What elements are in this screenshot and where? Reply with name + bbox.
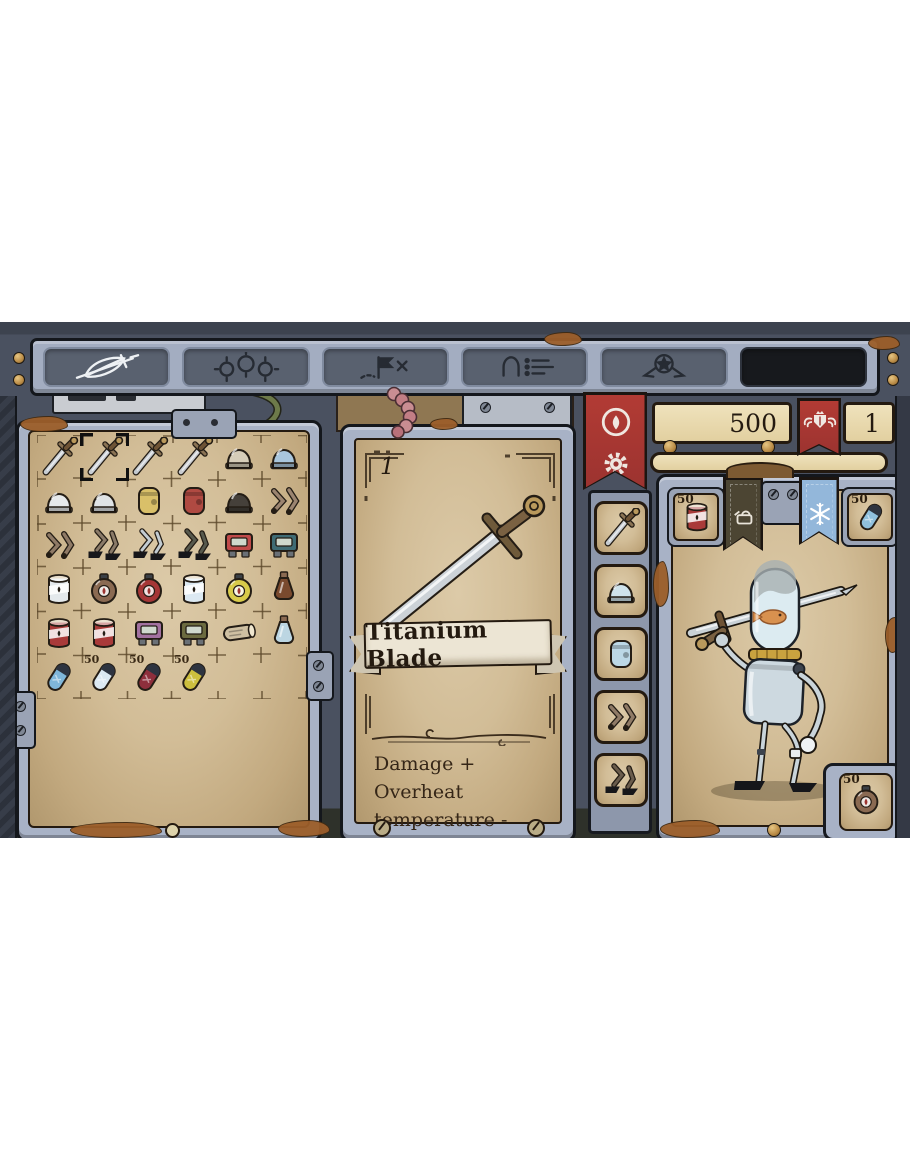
bracket-hole [183,419,190,426]
item-detail-panel: 1 Titanium Blade [340,424,576,838]
screw [768,489,779,500]
banner-fill [726,480,761,549]
banner-fill [586,395,645,488]
rust-patch [868,336,900,350]
equipment-slot-head[interactable] [594,564,648,618]
module-icon [174,613,214,653]
legs-icon [129,525,169,565]
inventory-item-ice-grenade[interactable] [172,567,217,611]
oil-quickslot[interactable]: 50 [667,487,725,547]
can-icon [39,569,79,609]
sword-icon [601,508,641,548]
bomb-icon [129,569,169,609]
rust-patch [278,820,330,837]
module-icon [264,525,304,565]
star-medal-icon [610,352,718,382]
inventory-item-red-capsule[interactable]: 50 [127,655,172,699]
inventory-item-white-capsule[interactable]: 50 [82,655,127,699]
fame-pennant [797,398,841,456]
bomb-item [847,781,885,819]
rust-patch [430,418,458,430]
rust-patch [70,822,162,838]
oil-amount: 500 [729,409,777,438]
item-name: Titanium Blade [365,615,550,673]
bomb-icon [84,569,124,609]
helmet-icon [219,437,259,477]
inventory-item-emp-bomb[interactable] [217,567,262,611]
equipment-slot-body[interactable] [594,627,648,681]
module-icon [219,525,259,565]
inventory-item-yellow-capsule[interactable]: 50 [172,655,217,699]
inventory-item-gold-torso[interactable] [127,479,172,523]
rust-patch [653,561,669,607]
helmet-icon [264,437,304,477]
arms-icon [264,481,304,521]
rivet [13,352,25,364]
rust-patch [660,820,720,838]
item-count: 50 [174,653,189,666]
oil-drop-icon [599,405,633,439]
panel-rivet [373,819,391,837]
screw [544,402,555,413]
inventory-item-fire-bomb[interactable] [127,567,172,611]
equipment-column [588,490,652,834]
bottle-icon [264,613,304,653]
panel-rivet [767,823,781,837]
torso-icon [129,481,169,521]
pill-icon [39,657,79,697]
tab-gear[interactable] [182,347,309,387]
detail-card: 1 Titanium Blade [354,438,562,824]
inventory-item-purple-module[interactable] [127,611,172,655]
fame-level-field: 1 [843,402,895,444]
screw [480,402,491,413]
inventory-item-dagger[interactable] [172,435,217,479]
bottle-icon [264,569,304,609]
inventory-item-steel-helmet[interactable] [37,479,82,523]
sword-icon [174,437,214,477]
can-icon [39,613,79,653]
equipment-slot-arms[interactable] [594,690,648,744]
inventory-item-red-torso[interactable] [172,479,217,523]
ribbon-band: Titanium Blade [364,619,553,669]
rust-patch [544,332,582,346]
equipment-slot-legs[interactable] [594,753,648,807]
inventory-item-titanium-blade[interactable] [82,435,127,479]
fame-level: 1 [864,409,880,438]
can-icon [174,569,214,609]
tab-map[interactable] [322,347,449,387]
right-hinge [306,651,334,701]
inventory-grid: 505050 [37,435,307,699]
sword-icon [129,437,169,477]
inventory-item-robot-arms[interactable] [262,479,307,523]
screw [313,660,324,671]
stat-line: Damage + [374,750,560,778]
bomb-quickslot[interactable]: 50 [839,773,893,831]
game-viewport: 505050 1 [0,322,910,838]
bomb-quickslot-backing: 50 [823,763,903,838]
oil-tag-banner [723,477,763,551]
helmet-icon [84,481,124,521]
bomb-icon [219,569,259,609]
rivet [13,374,25,386]
panel-rivet [165,823,180,838]
divider-flourish [368,728,550,746]
inventory-item-oil-can-large[interactable] [82,611,127,655]
inventory-item-fur-hat[interactable] [217,479,262,523]
worm-hose [380,384,442,440]
tab-inventory[interactable] [43,347,170,387]
rivet [887,374,899,386]
inventory-item-teal-module[interactable] [262,523,307,567]
character-panel: 50 [656,474,904,838]
winged-shield-icon [802,411,838,435]
inventory-item-sack-bomb[interactable] [82,567,127,611]
bomb-quickslot-count: 50 [843,772,860,786]
legs-icon [174,525,214,565]
inventory-item-armored-legs[interactable] [127,523,172,567]
inventory-item-oil-can-small[interactable] [37,611,82,655]
helmet-icon [39,481,79,521]
panel-bracket [171,409,237,439]
inventory-item-coolant-capsule[interactable] [37,655,82,699]
oil-quickslot-count: 50 [677,492,694,506]
scroll-icon [219,613,259,653]
inventory-item-canister[interactable] [37,567,82,611]
helmet-icon [601,571,641,611]
inventory-item-crystal-flask[interactable] [262,611,307,655]
oil-amount-field: 500 [652,402,792,444]
coolant-quickslot-inner: 50 [847,493,893,541]
inventory-item-robot-arms[interactable] [37,523,82,567]
arms-icon [601,697,641,737]
torso-icon [174,481,214,521]
legs-icon [84,525,124,565]
inventory-item-sword[interactable] [127,435,172,479]
tab-bar [30,338,880,396]
oil-quickslot-inner: 50 [673,493,719,541]
can-icon [84,613,124,653]
helmet-icon [219,481,259,521]
item-count: 50 [129,653,144,666]
right-wall-strip [895,396,910,838]
inventory-item-red-module[interactable] [217,523,262,567]
map-flag-icon [331,352,439,382]
page: { "tabs": { "items": [ {"id":"inventory"… [0,0,910,1155]
inventory-panel: 505050 [16,420,322,838]
sword-icon [39,437,79,477]
left-wall-strip [0,396,17,838]
gears-icon [192,352,300,382]
screw [787,489,798,500]
oil-banner [583,392,647,490]
torso-icon [601,634,641,674]
inventory-item-robot-legs[interactable] [82,523,127,567]
coolant-quickslot[interactable]: 50 [841,487,899,547]
tab-blank[interactable] [740,347,867,387]
rivet [887,352,899,364]
module-icon [129,613,169,653]
oil-can-icon [731,506,757,528]
arms-icon [39,525,79,565]
panel-rivet [527,819,545,837]
rust-patch [20,416,68,432]
tab-achievements[interactable] [600,347,727,387]
dirt-mound [726,462,794,478]
tab-character[interactable] [461,347,588,387]
inventory-item-dome-helmet[interactable] [262,435,307,479]
item-count: 50 [84,653,99,666]
item-name-ribbon: Titanium Blade [349,618,567,676]
inventory-item-scroll[interactable] [217,611,262,655]
banner-fill [802,480,837,543]
selection-brackets [80,433,129,481]
inventory-item-fur-helmet[interactable] [217,435,262,479]
screw [313,681,324,692]
robot-list-icon [471,352,579,382]
inventory-item-oil-flask[interactable] [262,567,307,611]
inventory-item-visor-helmet[interactable] [82,479,127,523]
inventory-item-dark-legs[interactable] [172,523,217,567]
coolant-quickslot-count: 50 [851,492,868,506]
inventory-item-olive-module[interactable] [172,611,217,655]
coolant-tag-banner [799,477,839,545]
inventory-item-sword[interactable] [37,435,82,479]
bracket-hole [211,419,218,426]
snowflake-icon [808,502,832,526]
feather-sword-icon [53,352,161,382]
equipment-slot-weapon[interactable] [594,501,648,555]
legs-icon [601,760,641,800]
